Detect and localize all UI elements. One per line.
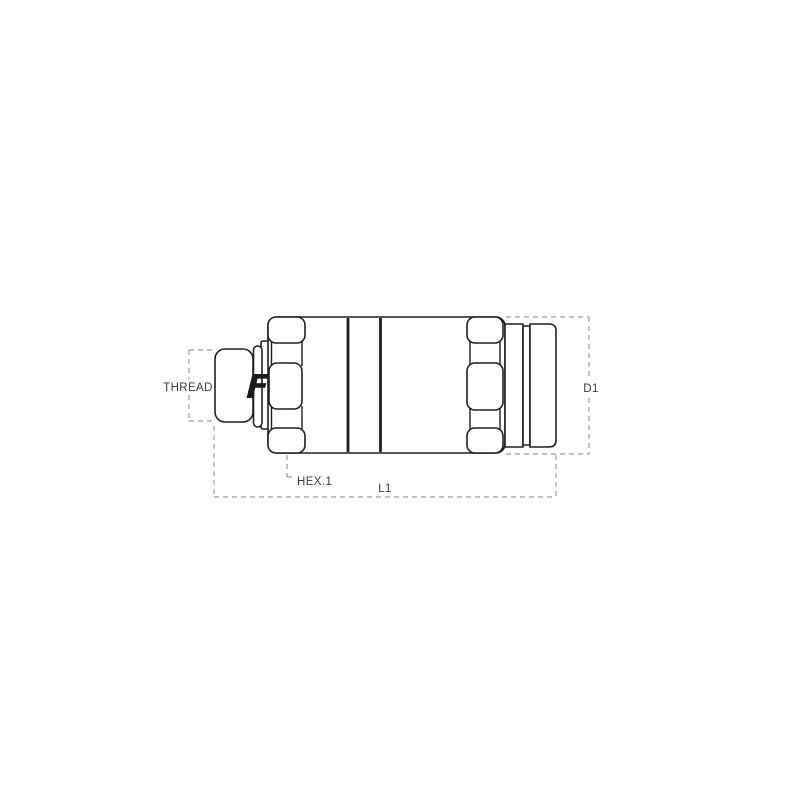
drawing-canvas: THREAD L1 HEX.1 D1 — [0, 0, 800, 800]
l1-label: L1 — [378, 483, 392, 495]
left-hex-top-flat — [268, 317, 305, 343]
dimension-thread: THREAD — [163, 350, 216, 421]
left-hex-nut: F — [245, 317, 305, 453]
hex1-label: HEX.1 — [297, 476, 332, 488]
sleeve-ring — [505, 324, 523, 447]
sleeve-end — [505, 324, 556, 447]
right-hex-mid-flat — [467, 363, 503, 410]
brand-logo-f: F — [245, 367, 270, 406]
right-hex-nut — [467, 317, 503, 453]
coupling-part: F — [215, 317, 556, 453]
dimension-hex1: HEX.1 — [287, 455, 332, 488]
right-hex-bottom-flat — [467, 428, 503, 453]
sleeve-end-cap — [530, 324, 556, 447]
coupling-technical-drawing: THREAD L1 HEX.1 D1 — [0, 0, 800, 800]
thread-label: THREAD — [163, 382, 213, 394]
left-hex-mid-flat — [269, 363, 302, 409]
left-hex-bottom-flat — [268, 428, 305, 453]
sleeve-groove — [523, 326, 530, 445]
d1-label: D1 — [583, 383, 599, 395]
right-hex-top-flat — [467, 317, 503, 343]
